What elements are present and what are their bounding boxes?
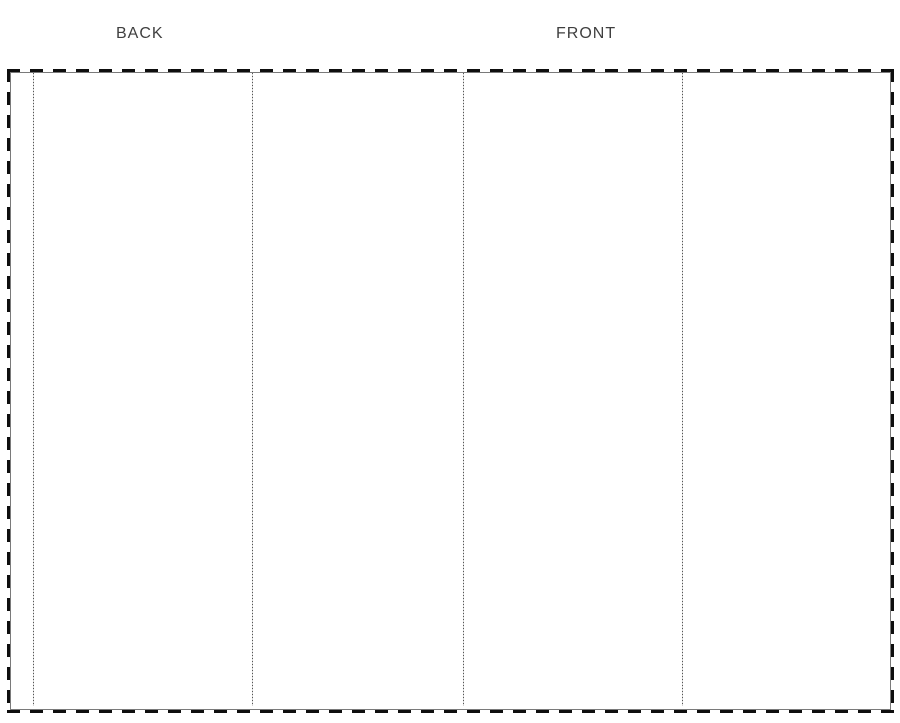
panel-back[interactable] — [33, 73, 252, 708]
back-panel-label: BACK — [116, 25, 164, 43]
panel-left-flap[interactable] — [8, 73, 33, 708]
panel-inside-left[interactable] — [252, 73, 463, 708]
panel-front[interactable] — [463, 73, 682, 708]
front-panel-label: FRONT — [556, 25, 616, 43]
template-page: BACK FRONT — [0, 0, 900, 723]
panel-inside-right[interactable] — [682, 73, 892, 708]
dashed-border-bottom — [7, 710, 894, 713]
